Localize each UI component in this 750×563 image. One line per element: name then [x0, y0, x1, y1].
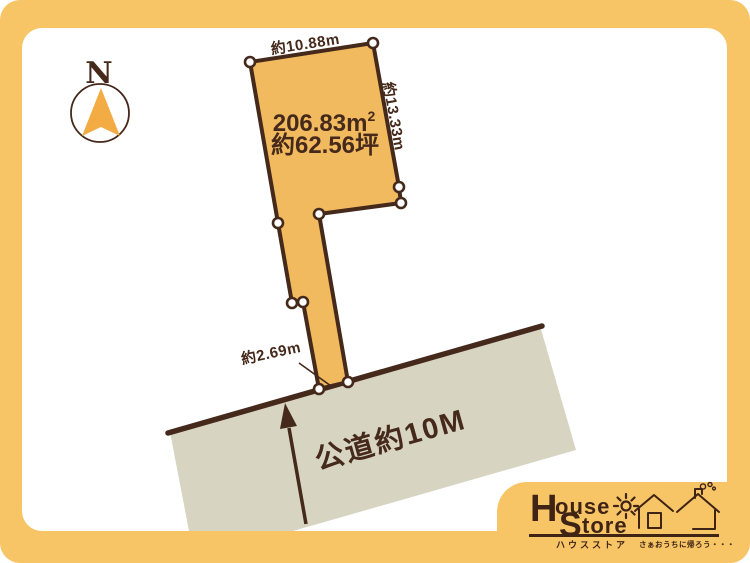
- houses-icon: [633, 482, 725, 541]
- north-needle-icon: [82, 88, 120, 136]
- house-store-logo: H ouse S tore: [497, 482, 750, 563]
- vertex-marker: [287, 298, 297, 308]
- area-superscript: 2: [367, 108, 375, 124]
- logo-tagline: さぁおうちに帰ろう・・・: [639, 539, 735, 550]
- north-letter: N: [85, 56, 112, 91]
- logo-word1-initial: H: [530, 488, 557, 531]
- vertex-marker: [298, 297, 308, 307]
- vertex-marker: [396, 198, 406, 208]
- vertex-marker: [394, 182, 404, 192]
- vertex-marker: [314, 384, 324, 394]
- compass: N: [71, 56, 129, 142]
- vertex-marker: [273, 218, 283, 228]
- logo-subtitle: ハウスストア: [556, 538, 628, 551]
- logo-underline: [529, 534, 719, 537]
- diagram-card: 公道約10M 約10.88m 約13.33m 約2.69m 206.83m2 約…: [0, 0, 750, 563]
- vertex-marker: [368, 38, 378, 48]
- plot-polygon: [250, 43, 401, 389]
- vertex-marker: [245, 57, 255, 67]
- frontage-dimension: 約2.69m: [239, 338, 302, 368]
- vertex-marker: [343, 377, 353, 387]
- vertex-marker: [314, 209, 324, 219]
- land-plot-diagram: 公道約10M 約10.88m 約13.33m 約2.69m 206.83m2 約…: [0, 0, 750, 563]
- area-tsubo-label: 約62.56坪: [271, 131, 379, 159]
